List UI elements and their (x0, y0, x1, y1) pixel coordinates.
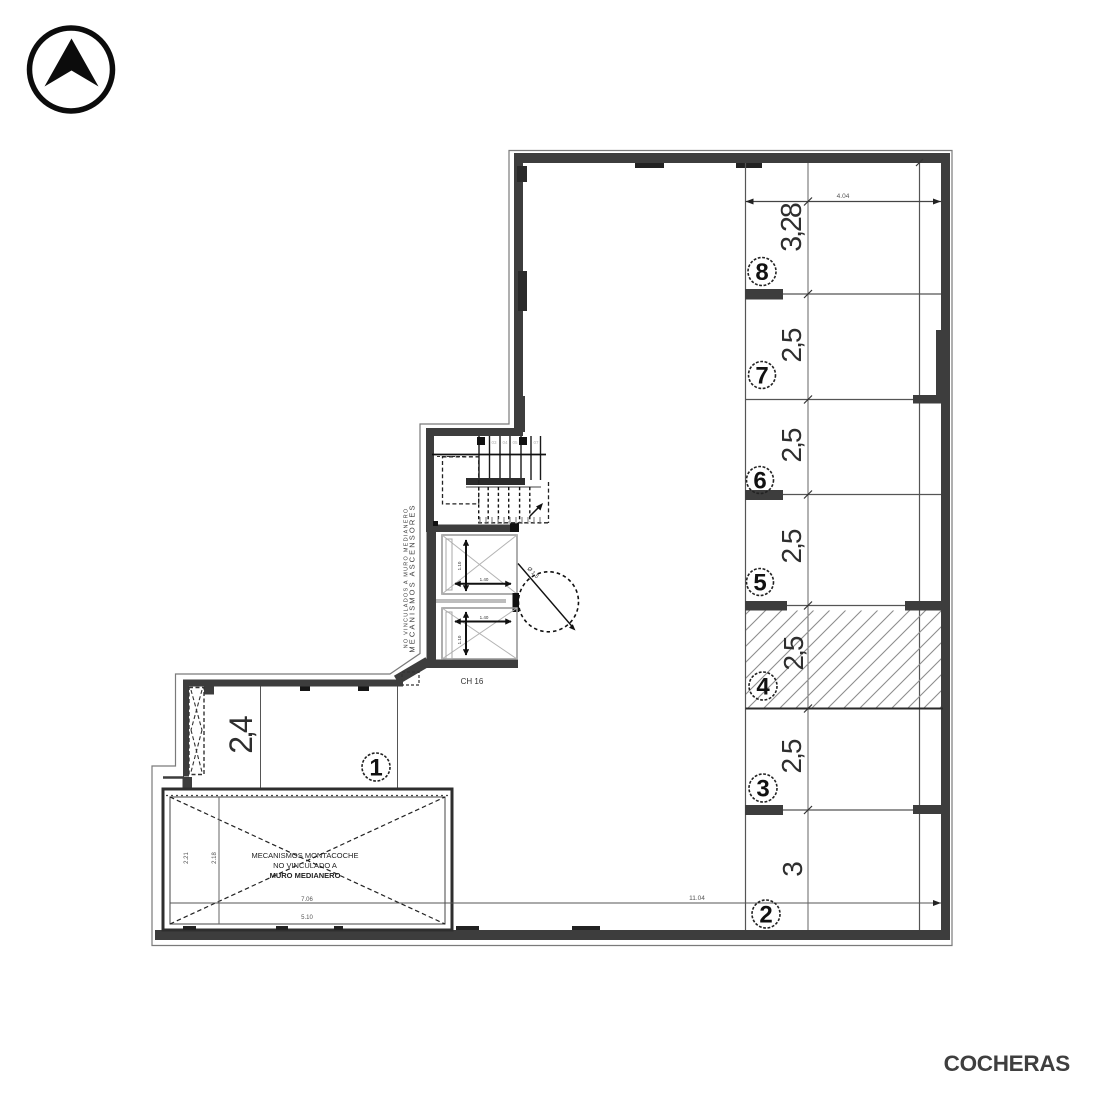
svg-text:1.40: 1.40 (480, 615, 489, 620)
svg-text:03: 03 (491, 440, 497, 445)
svg-text:7.06: 7.06 (301, 897, 313, 903)
svg-text:2,5: 2,5 (776, 428, 807, 462)
svg-text:07: 07 (533, 440, 539, 445)
svg-text:NO VINCULADO A: NO VINCULADO A (273, 861, 337, 870)
svg-text:7: 7 (755, 363, 768, 390)
svg-text:COCHERAS: COCHERAS (944, 1051, 1071, 1076)
svg-text:8: 8 (755, 259, 768, 286)
svg-text:1.10: 1.10 (457, 561, 462, 570)
svg-text:2,5: 2,5 (778, 636, 809, 670)
svg-text:4.04: 4.04 (837, 193, 850, 200)
svg-text:2: 2 (759, 902, 772, 929)
svg-text:MECANISMOS MONTACOCHE: MECANISMOS MONTACOCHE (252, 851, 359, 860)
svg-text:1.40: 1.40 (480, 577, 489, 582)
svg-text:3: 3 (756, 776, 769, 803)
svg-text:3,28: 3,28 (776, 203, 808, 252)
svg-text:5: 5 (753, 570, 766, 597)
svg-text:11.04: 11.04 (689, 895, 705, 902)
svg-text:2,4: 2,4 (223, 716, 259, 754)
svg-text:NO VINCULADOS A MURO MEDIANERO: NO VINCULADOS A MURO MEDIANERO (404, 508, 410, 649)
svg-text:2.18: 2.18 (212, 852, 218, 864)
svg-text:MURO MEDIANERO: MURO MEDIANERO (270, 871, 341, 880)
svg-text:04: 04 (502, 440, 508, 445)
svg-text:4: 4 (756, 674, 770, 701)
svg-text:05: 05 (512, 440, 518, 445)
svg-text:CH 16: CH 16 (461, 677, 484, 686)
svg-text:2,5: 2,5 (776, 529, 807, 563)
svg-text:6: 6 (753, 468, 766, 495)
svg-text:1.10: 1.10 (457, 635, 462, 644)
svg-text:2.21: 2.21 (184, 852, 190, 864)
svg-text:1: 1 (369, 755, 382, 782)
svg-text:3: 3 (777, 861, 808, 877)
svg-text:5.10: 5.10 (301, 915, 313, 921)
svg-text:2,5: 2,5 (776, 328, 807, 362)
svg-text:2,5: 2,5 (776, 739, 807, 773)
